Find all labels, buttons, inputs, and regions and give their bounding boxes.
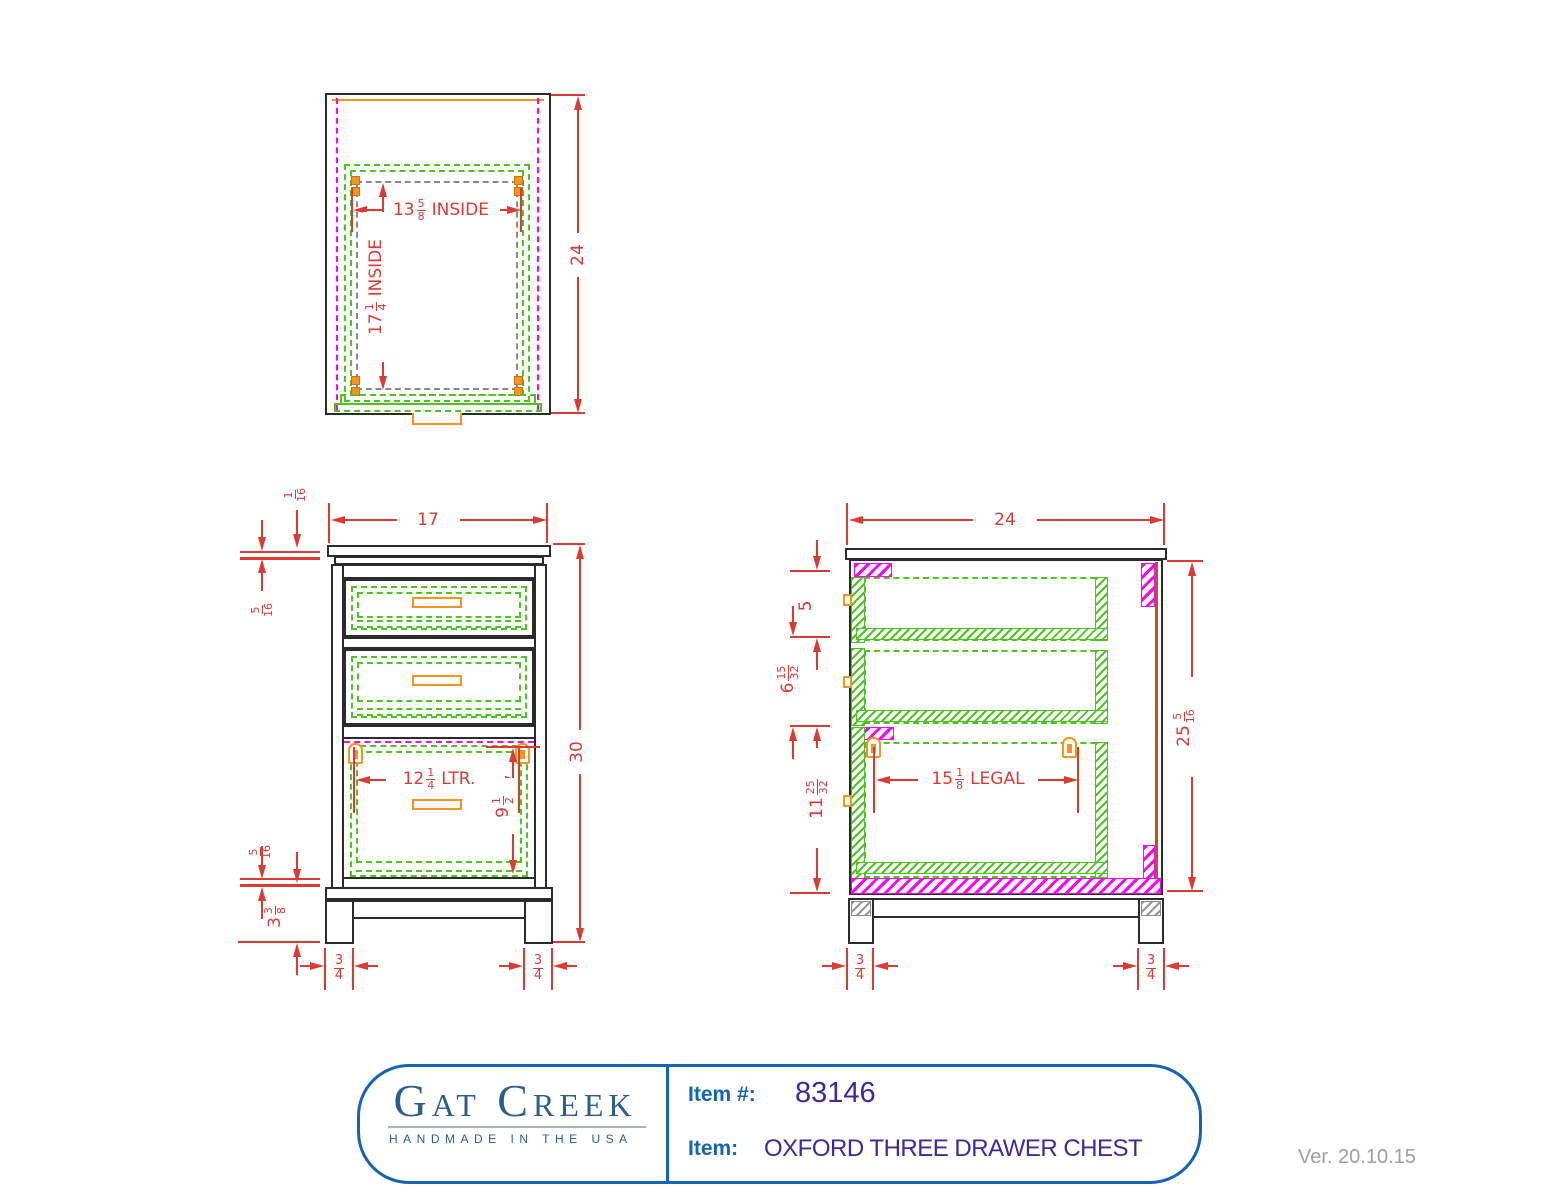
item-name-label: Item: — [688, 1137, 738, 1161]
item-number-label: Item #: — [688, 1083, 756, 1107]
title-block: Gat Creek HANDMADE IN THE USA Item #: 83… — [0, 0, 1552, 1200]
drawing-sheet: 1358INSIDE 1714INSIDE 24 — [0, 0, 1552, 1200]
item-number-value: 83146 — [795, 1077, 876, 1110]
version-text: Ver. 20.10.15 — [1298, 1146, 1416, 1169]
item-name-value: OXFORD THREE DRAWER CHEST — [764, 1135, 1142, 1163]
title-block-divider — [666, 1064, 669, 1184]
brand-underline — [388, 1126, 646, 1128]
brand-tagline: HANDMADE IN THE USA — [389, 1132, 633, 1146]
brand-logo: Gat Creek — [380, 1078, 650, 1124]
